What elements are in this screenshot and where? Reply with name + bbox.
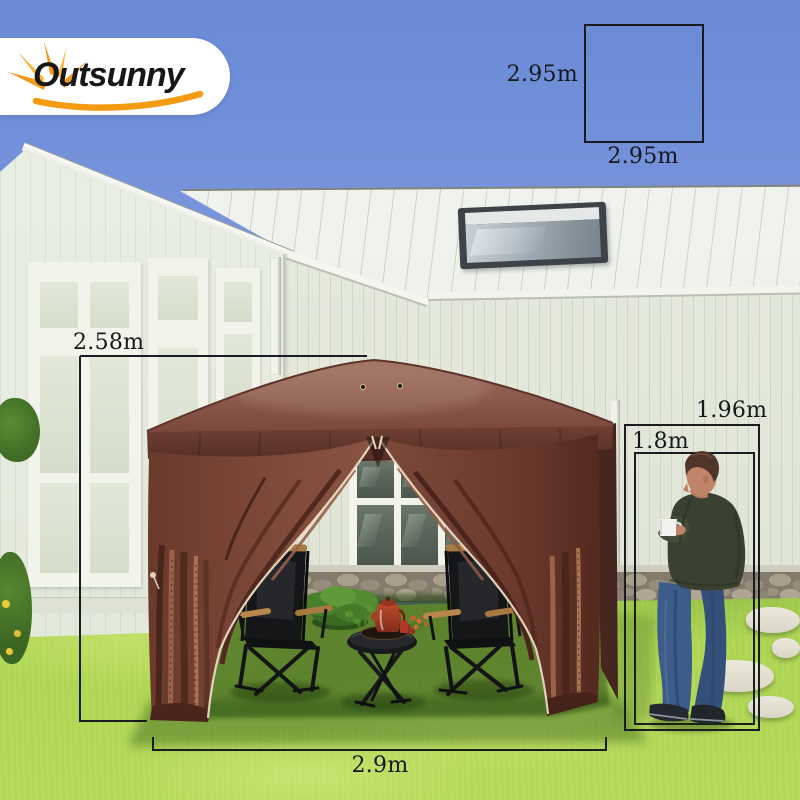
logo-swoosh <box>36 94 200 108</box>
roof-grommet <box>397 383 402 388</box>
label-eave-height: 1.96m <box>696 398 767 423</box>
label-footprint-height: 2.95m <box>504 62 578 87</box>
chair-shadow <box>230 682 330 702</box>
table-shadow <box>341 693 425 711</box>
logo-text: Outsunny <box>33 56 184 95</box>
brand-logo: Outsunny <box>0 38 230 115</box>
label-footprint-width: 2.95m <box>584 144 702 169</box>
roof-grommet <box>360 384 365 389</box>
product-dimension-image: 2.58m 2.9m 1.96m 1.8m 2.95m 2.95m Outsun… <box>0 0 800 800</box>
label-canopy-height: 2.58m <box>73 330 144 355</box>
label-person-height: 1.8m <box>632 429 689 454</box>
footprint-square <box>584 24 704 143</box>
cup <box>400 621 408 633</box>
man-figure <box>649 451 745 732</box>
man-back-leg <box>694 580 726 715</box>
label-canopy-width: 2.9m <box>338 753 422 778</box>
